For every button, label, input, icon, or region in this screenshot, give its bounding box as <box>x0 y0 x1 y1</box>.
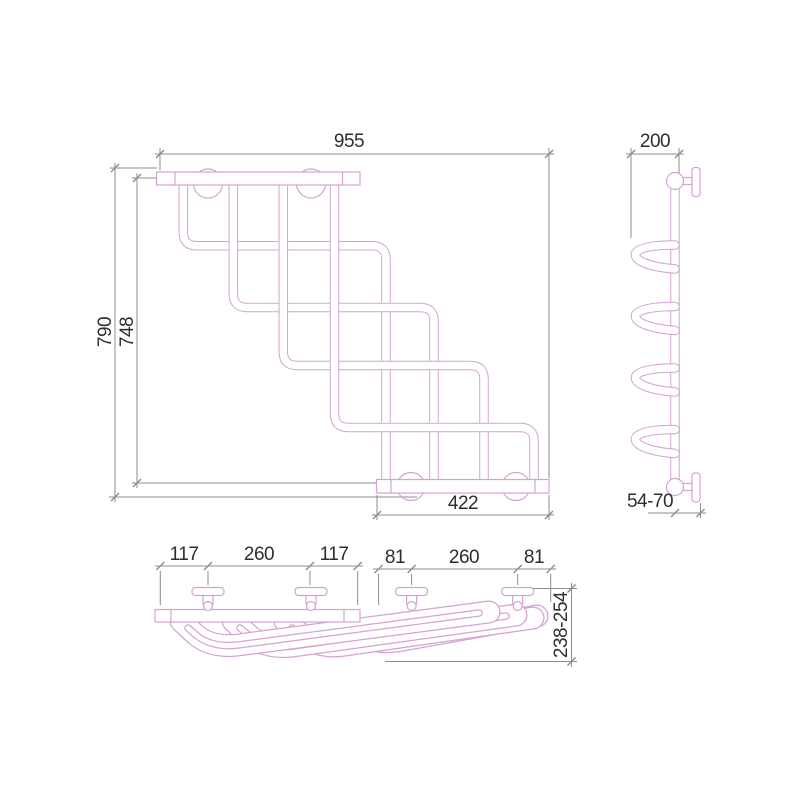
bracket-ball <box>667 173 684 190</box>
dim-top-reach: 238-254 <box>551 591 572 658</box>
dim-top-right-2: 260 <box>449 547 479 568</box>
dim-front-inner-height: 748 <box>117 317 138 347</box>
bracket-stem <box>683 178 692 185</box>
dim-front-height: 790 <box>95 317 116 347</box>
wall-bracket-2 <box>295 588 327 611</box>
wall-disc <box>692 473 700 502</box>
wall-plate-bar <box>155 610 360 623</box>
dim-front-width: 955 <box>334 131 364 152</box>
hook-arm-3 <box>635 368 675 392</box>
bottom-bar <box>377 480 550 494</box>
hook-arm-4 <box>635 430 675 454</box>
bracket-stem <box>683 484 692 491</box>
wall-bracket-3 <box>396 588 428 611</box>
hook-arm-2 <box>635 307 675 331</box>
dim-top-left-2: 260 <box>244 544 274 565</box>
dim-side-wall-clearance: 54-70 <box>627 491 673 512</box>
dim-top-left-1: 117 <box>170 544 199 565</box>
wall-disc <box>692 168 700 197</box>
dim-front-bottom-width: 422 <box>448 493 478 514</box>
side-view <box>635 168 700 503</box>
dim-top-right-3: 81 <box>524 547 544 568</box>
dim-top-right-1: 81 <box>385 547 405 568</box>
dim-side-depth: 200 <box>640 131 670 152</box>
top-wall-bar <box>157 172 361 185</box>
wall-bracket-1 <box>192 588 224 611</box>
front-view <box>157 169 550 501</box>
top-view <box>155 588 537 647</box>
dim-top-left-3: 117 <box>320 544 349 565</box>
technical-drawing: 955 790 748 422 200 54-70 117 260 117 81… <box>0 0 800 800</box>
hook-arm-1 <box>635 245 675 269</box>
page: 955 790 748 422 200 54-70 117 260 117 81… <box>0 0 800 800</box>
